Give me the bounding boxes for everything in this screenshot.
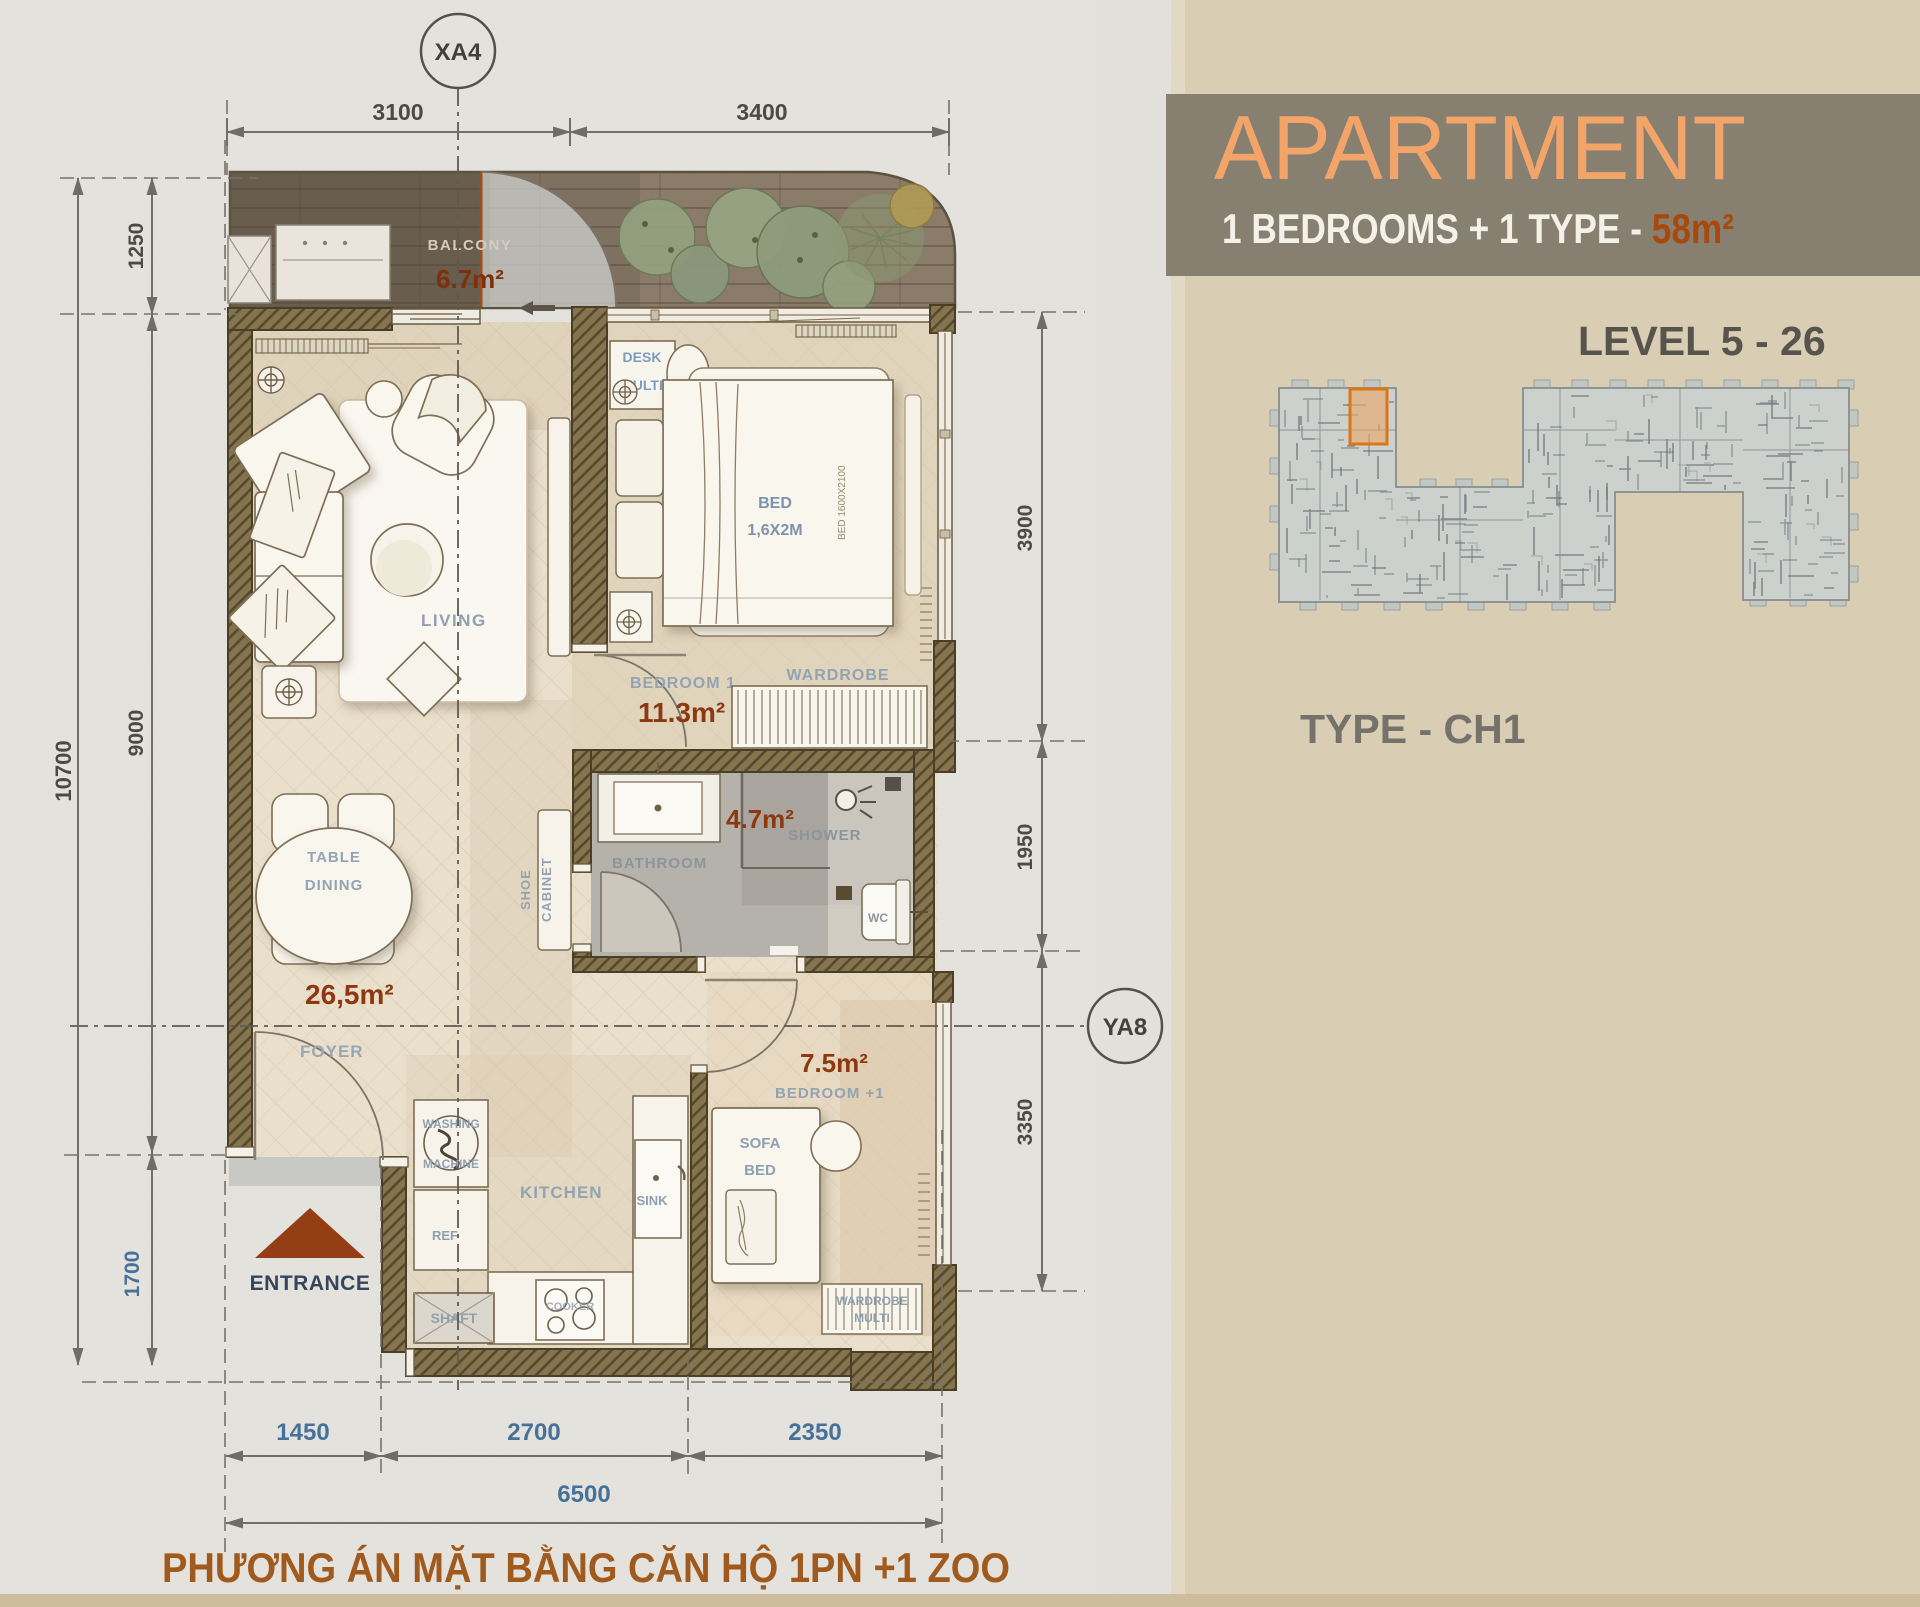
svg-text:MULTI: MULTI [854, 1311, 890, 1325]
svg-text:3900: 3900 [1014, 505, 1037, 552]
svg-text:SHAFT: SHAFT [431, 1310, 478, 1326]
svg-text:PHƯƠNG ÁN MẶT BẰNG CĂN HỘ 1PN: PHƯƠNG ÁN MẶT BẰNG CĂN HỘ 1PN +1 ZOO [162, 1543, 1010, 1591]
svg-text:1950: 1950 [1014, 824, 1037, 871]
svg-text:BALCONY: BALCONY [428, 237, 513, 254]
svg-text:DINING: DINING [305, 877, 364, 894]
svg-text:WARDROBE: WARDROBE [786, 667, 889, 684]
svg-text:1 BEDROOMS + 1 TYPE - 58m²: 1 BEDROOMS + 1 TYPE - 58m² [1222, 205, 1734, 252]
svg-text:BEDROOM 1: BEDROOM 1 [630, 675, 736, 692]
svg-text:3400: 3400 [736, 99, 787, 125]
svg-text:1250: 1250 [125, 223, 148, 270]
svg-text:3350: 3350 [1014, 1099, 1037, 1146]
svg-text:TYPE - CH1: TYPE - CH1 [1300, 706, 1526, 752]
svg-text:DESK: DESK [623, 349, 662, 365]
svg-text:3100: 3100 [372, 99, 423, 125]
svg-text:9000: 9000 [125, 710, 148, 757]
svg-text:1700: 1700 [121, 1251, 144, 1298]
svg-text:LIVING: LIVING [421, 611, 487, 630]
svg-text:KITCHEN: KITCHEN [520, 1183, 603, 1202]
svg-text:7.5m²: 7.5m² [800, 1048, 868, 1078]
svg-text:ENTRANCE: ENTRANCE [250, 1272, 371, 1295]
svg-text:BED: BED [744, 1162, 776, 1179]
svg-text:BED 1600X2100: BED 1600X2100 [837, 465, 848, 540]
svg-text:6500: 6500 [557, 1481, 610, 1508]
svg-text:1,6X2M: 1,6X2M [747, 522, 802, 539]
svg-text:26,5m²: 26,5m² [305, 979, 394, 1010]
svg-text:WASHING: WASHING [422, 1117, 479, 1131]
svg-text:YA8: YA8 [1103, 1014, 1147, 1041]
svg-text:6.7m²: 6.7m² [436, 264, 504, 294]
svg-text:CABINET: CABINET [539, 857, 554, 922]
svg-text:SINK: SINK [636, 1193, 668, 1208]
svg-text:MACHINE: MACHINE [423, 1157, 479, 1171]
svg-text:APARTMENT: APARTMENT [1214, 98, 1746, 199]
svg-text:WARDROBE: WARDROBE [836, 1294, 907, 1308]
svg-text:1450: 1450 [276, 1419, 329, 1446]
svg-text:10700: 10700 [51, 740, 76, 801]
svg-text:11.3m²: 11.3m² [638, 697, 725, 728]
svg-text:FOYER: FOYER [300, 1042, 364, 1061]
svg-text:LEVEL 5 - 26: LEVEL 5 - 26 [1578, 318, 1826, 364]
svg-text:SOFA: SOFA [740, 1135, 781, 1152]
svg-text:2350: 2350 [788, 1419, 841, 1446]
svg-text:SHOWER: SHOWER [788, 827, 862, 844]
svg-text:COOKER: COOKER [546, 1301, 594, 1313]
svg-text:2700: 2700 [507, 1419, 560, 1446]
svg-text:4.7m²: 4.7m² [726, 804, 794, 834]
svg-text:XA4: XA4 [435, 39, 482, 66]
svg-text:WC: WC [868, 911, 888, 925]
svg-text:REF: REF [432, 1228, 458, 1243]
svg-text:TABLE: TABLE [307, 849, 361, 866]
svg-text:BEDROOM +1: BEDROOM +1 [775, 1085, 885, 1102]
svg-text:BED: BED [758, 495, 792, 512]
svg-text:BATHROOM: BATHROOM [612, 855, 707, 872]
svg-text:SHOE: SHOE [518, 869, 533, 910]
